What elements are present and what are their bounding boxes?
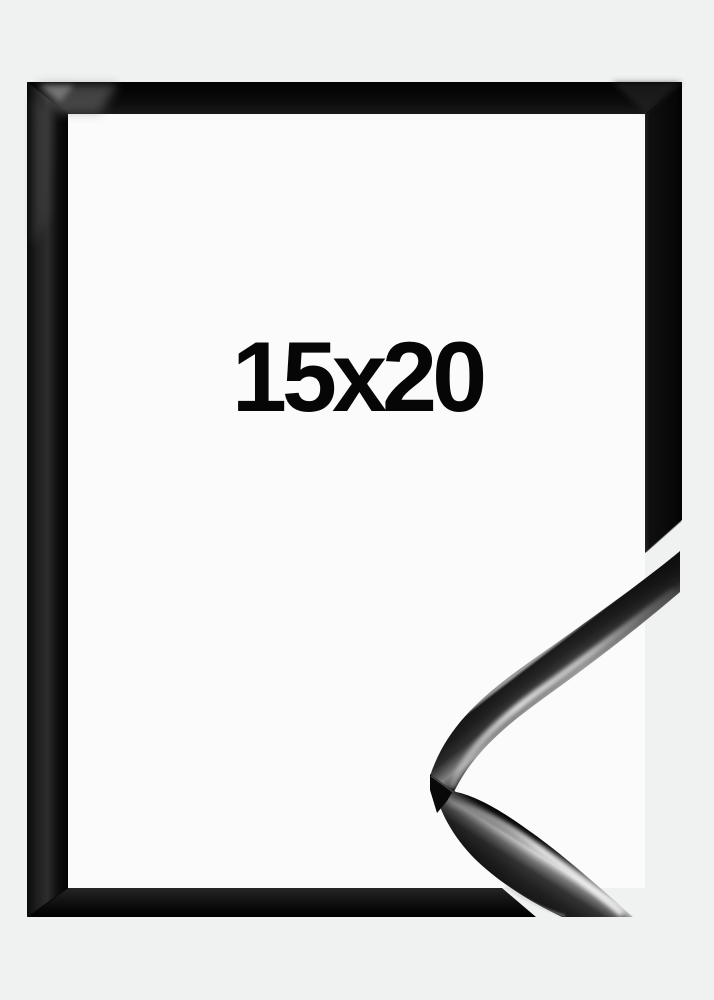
frame-right-bar <box>645 82 682 553</box>
frame-bottom-bar <box>27 888 536 917</box>
frame-product-photo-canvas: 15x20 <box>0 0 714 1000</box>
frame-opening <box>68 114 645 888</box>
product-photo: 15x20 <box>0 0 714 1000</box>
frame-top-bar <box>27 82 682 114</box>
size-label: 15x20 <box>232 321 483 432</box>
